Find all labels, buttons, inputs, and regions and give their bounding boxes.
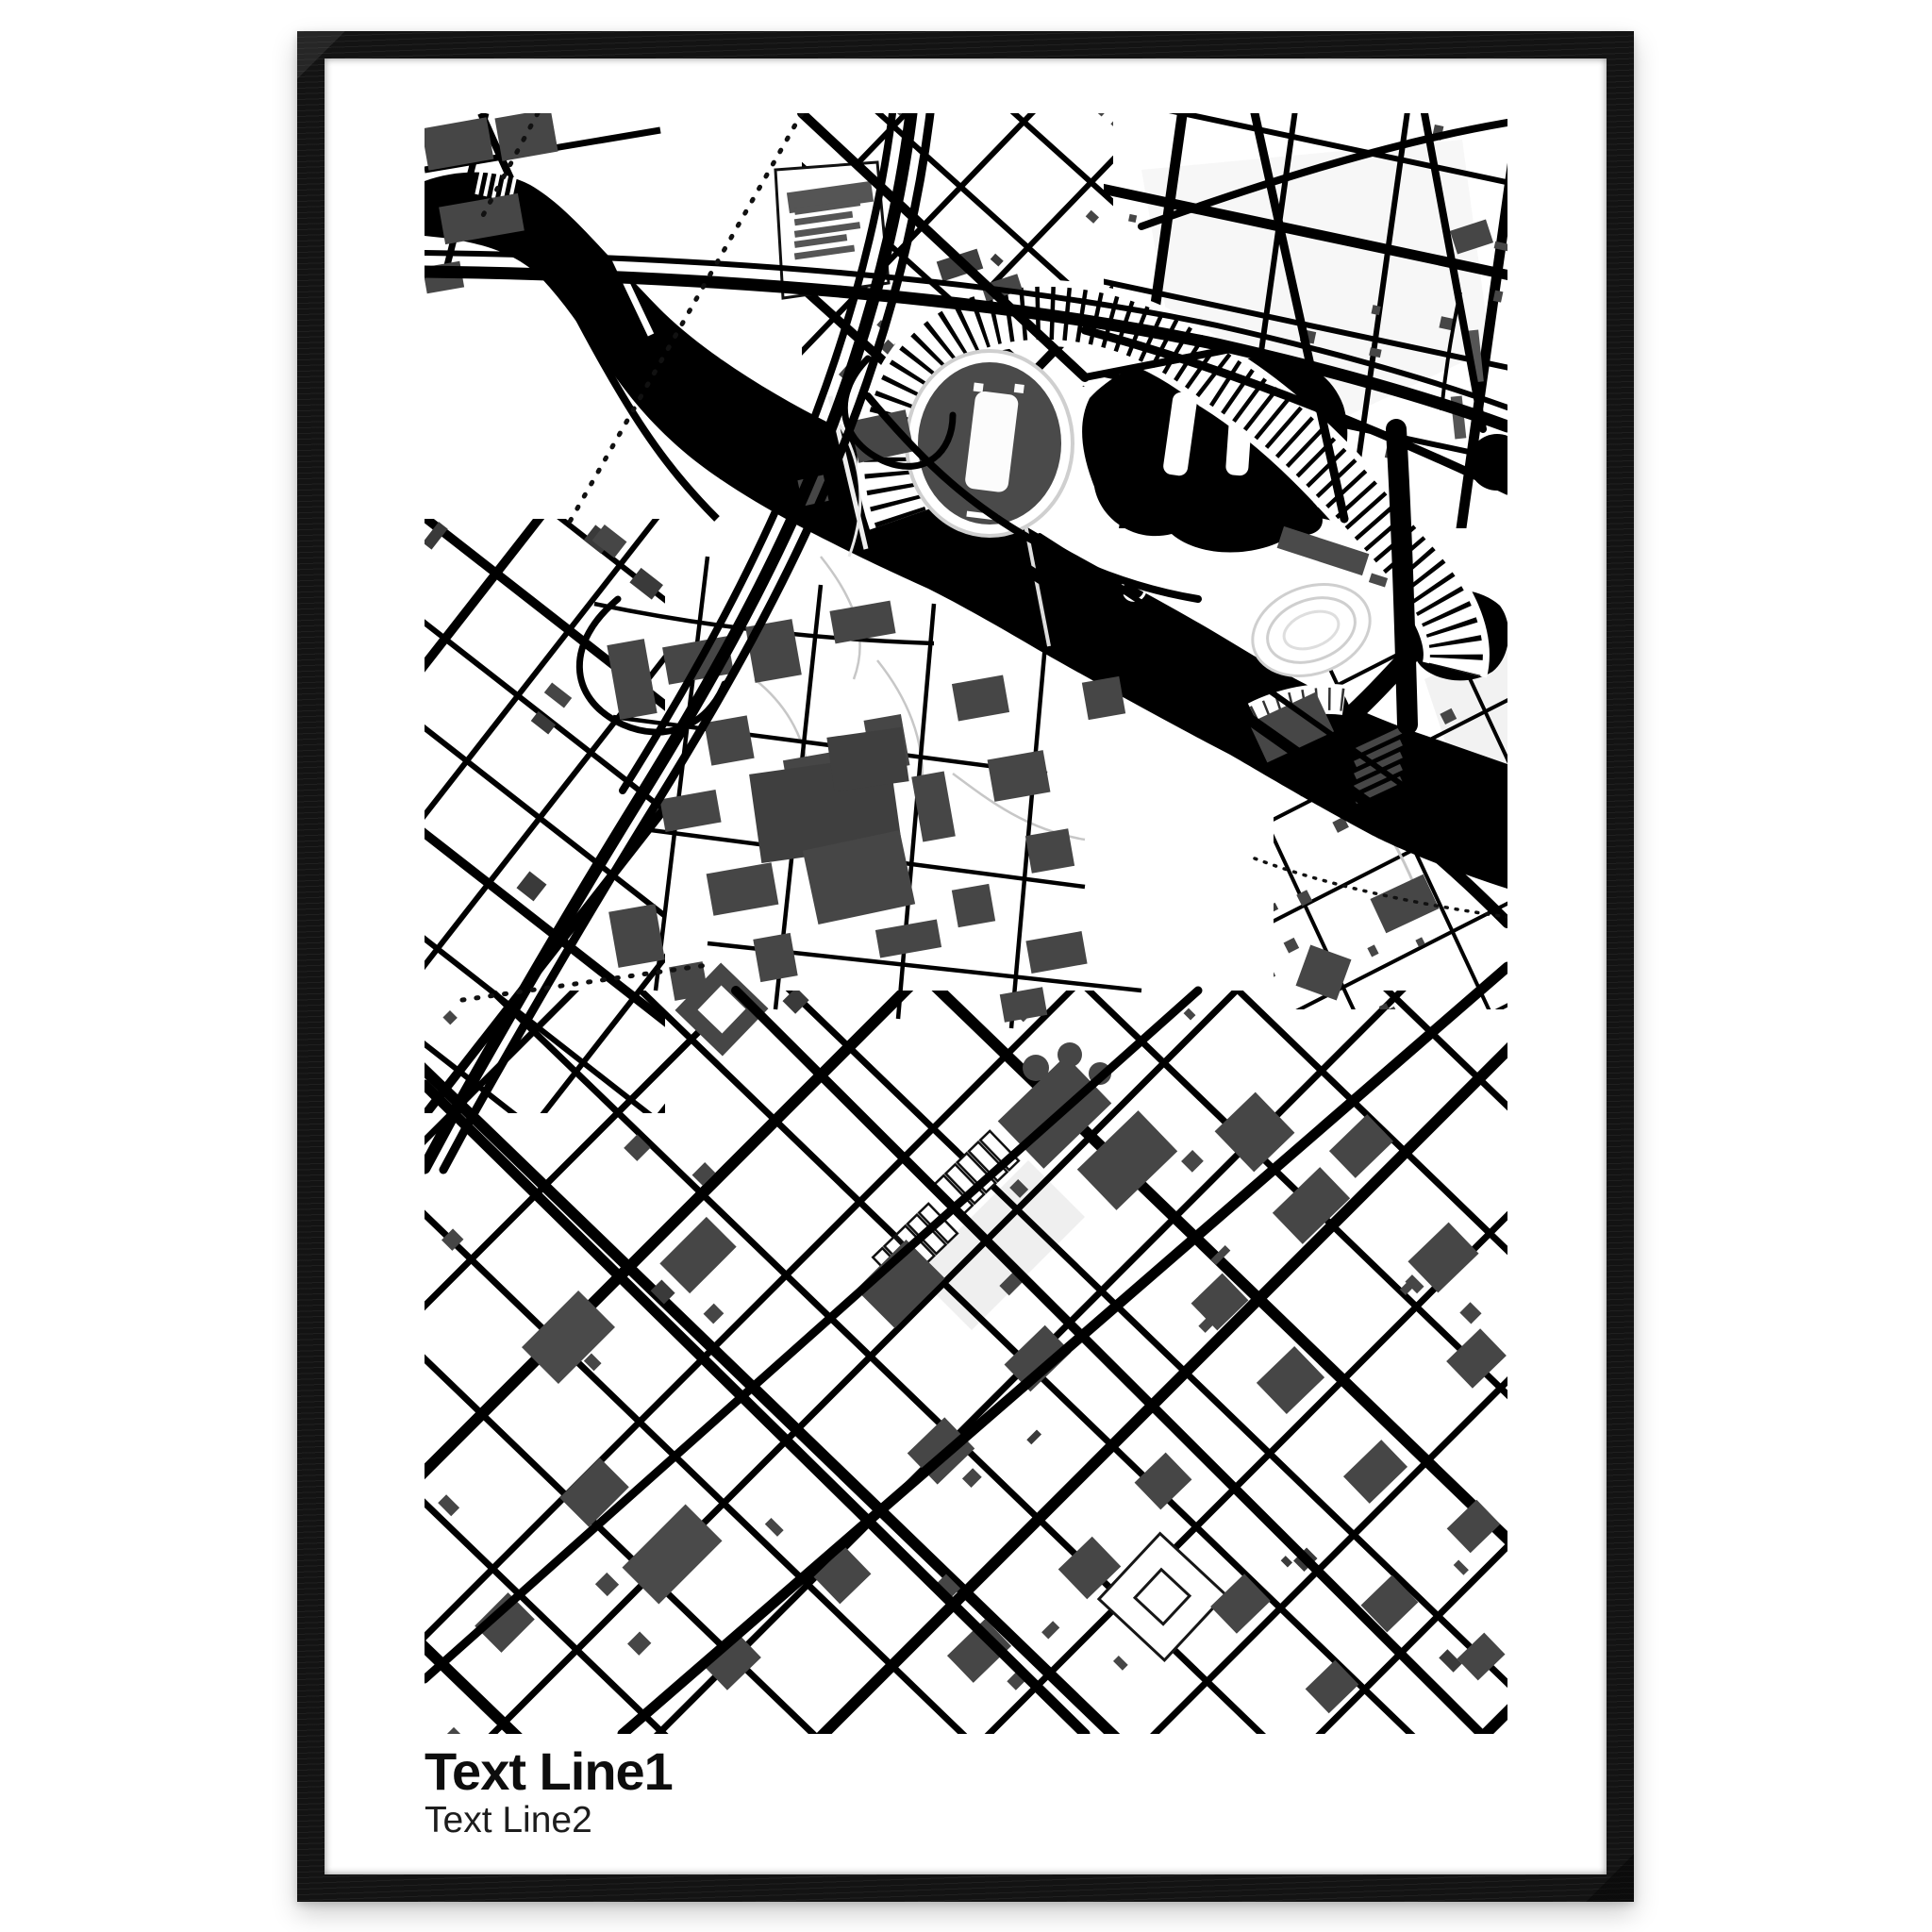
city-map-artwork — [425, 113, 1507, 1734]
page: { "poster": { "title_line1": "Text Line1… — [0, 0, 1932, 1932]
map-print — [425, 113, 1507, 1734]
building — [753, 933, 797, 982]
caption-line1: Text Line1 — [425, 1744, 1462, 1798]
caption-line2: Text Line2 — [425, 1801, 1462, 1841]
building — [1082, 676, 1125, 720]
building — [826, 727, 908, 792]
building — [608, 904, 665, 968]
building — [952, 884, 995, 927]
poster-caption: Text Line1 Text Line2 — [425, 1744, 1462, 1841]
building — [704, 715, 754, 765]
product-mockup-scene: Text Line1 Text Line2 — [0, 0, 1932, 1932]
wide-road — [1396, 429, 1407, 724]
building — [1025, 828, 1074, 873]
